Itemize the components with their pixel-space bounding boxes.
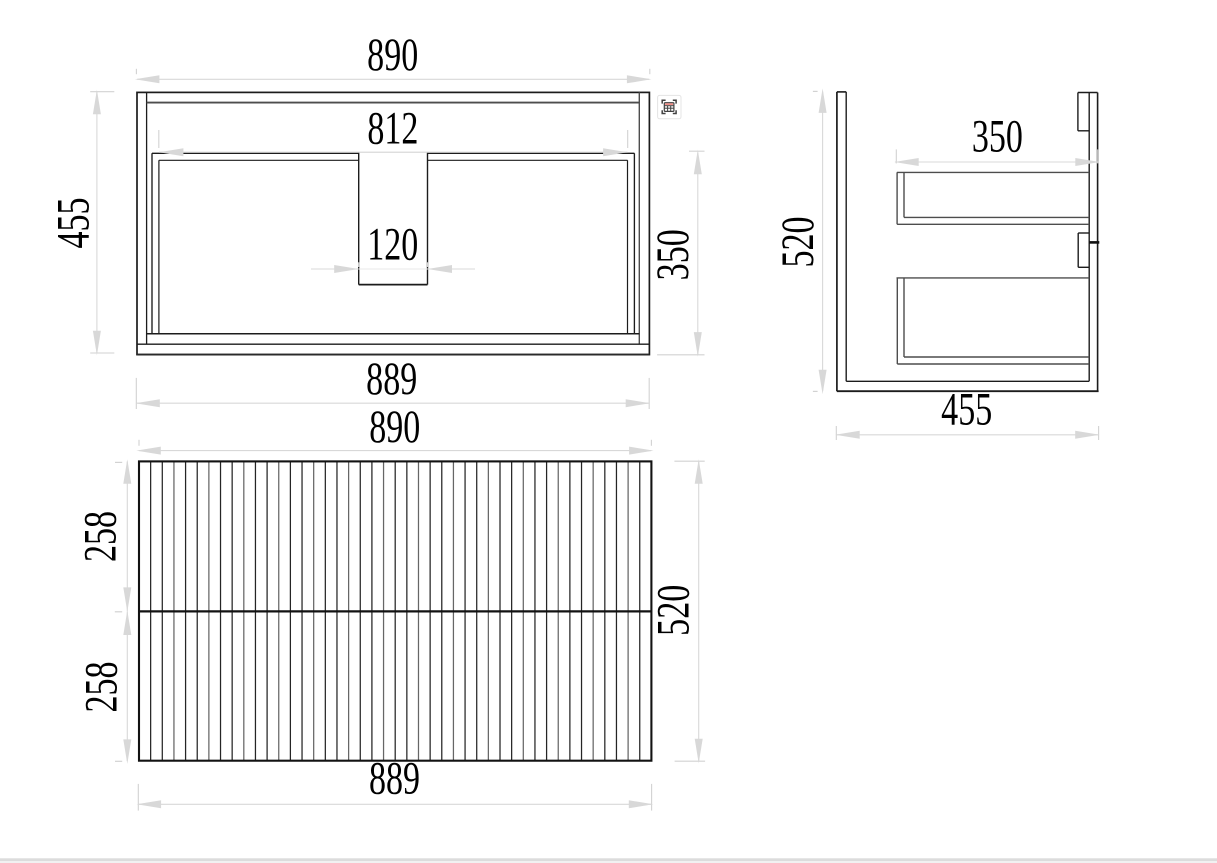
svg-text:520: 520 [647, 585, 698, 636]
svg-text:890: 890 [367, 29, 418, 80]
svg-text:520: 520 [772, 216, 823, 267]
svg-text:455: 455 [48, 197, 99, 248]
svg-text:120: 120 [367, 218, 418, 269]
svg-text:258: 258 [75, 661, 126, 712]
svg-text:258: 258 [74, 511, 125, 562]
svg-text:812: 812 [367, 102, 418, 153]
svg-text:890: 890 [369, 401, 420, 452]
svg-text:350: 350 [972, 110, 1023, 161]
svg-text:889: 889 [366, 353, 417, 404]
svg-text:455: 455 [941, 384, 992, 435]
svg-text:889: 889 [369, 752, 420, 803]
svg-text:350: 350 [647, 229, 698, 280]
